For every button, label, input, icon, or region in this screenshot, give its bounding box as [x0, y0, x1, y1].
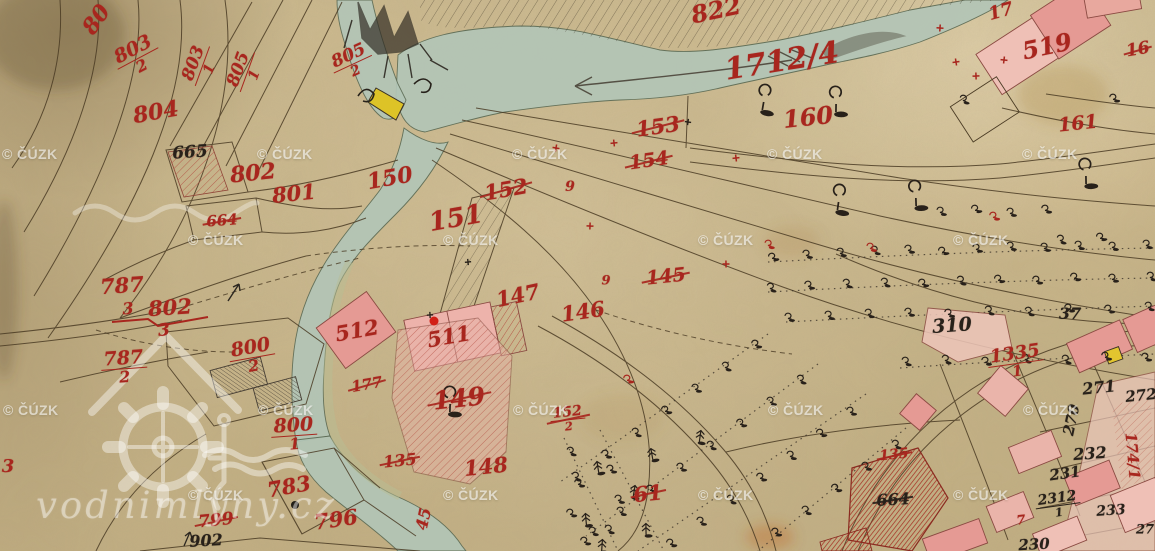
- parcel-label: 135: [383, 452, 418, 469]
- map-canvas[interactable]: [0, 0, 1155, 551]
- parcel-label: 272: [1125, 388, 1155, 404]
- parcel-label: 802: [147, 297, 192, 318]
- cuzk-watermark: © ČÚZK: [443, 487, 499, 503]
- parcel-label: 802: [229, 162, 277, 186]
- parcel-label: 161: [1057, 114, 1098, 135]
- parcel-label: 801: [271, 183, 317, 206]
- parcel-label: 152: [483, 177, 529, 203]
- parcel-label: 145: [645, 267, 686, 288]
- parcel-label: 3: [122, 302, 134, 317]
- cuzk-watermark: © ČÚZK: [3, 402, 59, 418]
- cuzk-watermark: © ČÚZK: [767, 146, 823, 162]
- parcel-label: 902: [189, 533, 223, 549]
- parcel-label: 271: [1082, 379, 1117, 396]
- cuzk-watermark: © ČÚZK: [698, 232, 754, 248]
- parcel-label: 9: [565, 181, 575, 193]
- parcel-label: 511: [426, 324, 472, 350]
- parcel-label: 154: [628, 150, 670, 172]
- parcel-label: 804: [132, 99, 181, 126]
- cuzk-watermark: © ČÚZK: [953, 487, 1009, 503]
- parcel-label: 148: [463, 456, 509, 479]
- parcel-label: 27: [1136, 524, 1154, 535]
- parcel-label: 146: [560, 300, 606, 324]
- parcel-label: 177: [350, 376, 383, 394]
- red-dot-mark: [430, 317, 439, 326]
- parcel-label: 230: [1018, 538, 1050, 551]
- cuzk-watermark: © ČÚZK: [2, 146, 58, 162]
- cuzk-watermark: © ČÚZK: [1022, 146, 1078, 162]
- parcel-label: 7: [1016, 515, 1026, 527]
- parcel-label: 160: [782, 104, 834, 130]
- cuzk-watermark: © ČÚZK: [513, 402, 569, 418]
- parcel-label: 3: [2, 459, 15, 475]
- cuzk-watermark: © ČÚZK: [258, 402, 314, 418]
- cuzk-watermark: © ČÚZK: [768, 402, 824, 418]
- parcel-label: 664: [876, 492, 910, 508]
- parcel-label: 151: [427, 203, 484, 235]
- parcel-label: 310: [932, 316, 973, 335]
- parcel-label: 45: [415, 507, 433, 532]
- cuzk-watermark: © ČÚZK: [1023, 402, 1079, 418]
- cuzk-watermark: © ČÚZK: [257, 146, 313, 162]
- parcel-label: 8001: [270, 416, 318, 453]
- parcel-label: 61: [632, 483, 663, 504]
- parcel-label: 787: [99, 275, 144, 296]
- parcel-label: 150: [366, 165, 415, 192]
- parcel-label: 37: [1059, 307, 1081, 321]
- parcel-label: 16: [1125, 41, 1151, 60]
- parcel-label: 233: [1096, 504, 1126, 518]
- parcel-label: 149: [432, 385, 486, 412]
- parcel-label: 232: [1073, 446, 1107, 462]
- parcel-label: 135: [879, 447, 909, 462]
- parcel-label: 665: [172, 144, 208, 161]
- parcel-label: 9: [601, 275, 610, 286]
- cuzk-watermark: © ČÚZK: [512, 146, 568, 162]
- parcel-label: 153: [635, 115, 681, 139]
- cuzk-watermark: © ČÚZK: [443, 232, 499, 248]
- parcel-label: 664: [206, 213, 238, 228]
- cuzk-watermark: © ČÚZK: [188, 232, 244, 248]
- cuzk-watermark: © ČÚZK: [698, 487, 754, 503]
- parcel-label: 174/1: [1123, 432, 1140, 480]
- historic-cadastral-map-viewer[interactable]: 8080328031805180528046658028016641501511…: [0, 0, 1155, 551]
- parcel-label: 231: [1049, 465, 1082, 482]
- vodnimlyny-logo-text: vodnimlyny.cz: [36, 484, 337, 527]
- cuzk-watermark: © ČÚZK: [953, 232, 1009, 248]
- parcel-label: 512: [334, 318, 380, 344]
- parcel-label: 7872: [100, 349, 148, 386]
- parcel-label: 17: [987, 1, 1015, 23]
- parcel-label: 3: [158, 323, 171, 339]
